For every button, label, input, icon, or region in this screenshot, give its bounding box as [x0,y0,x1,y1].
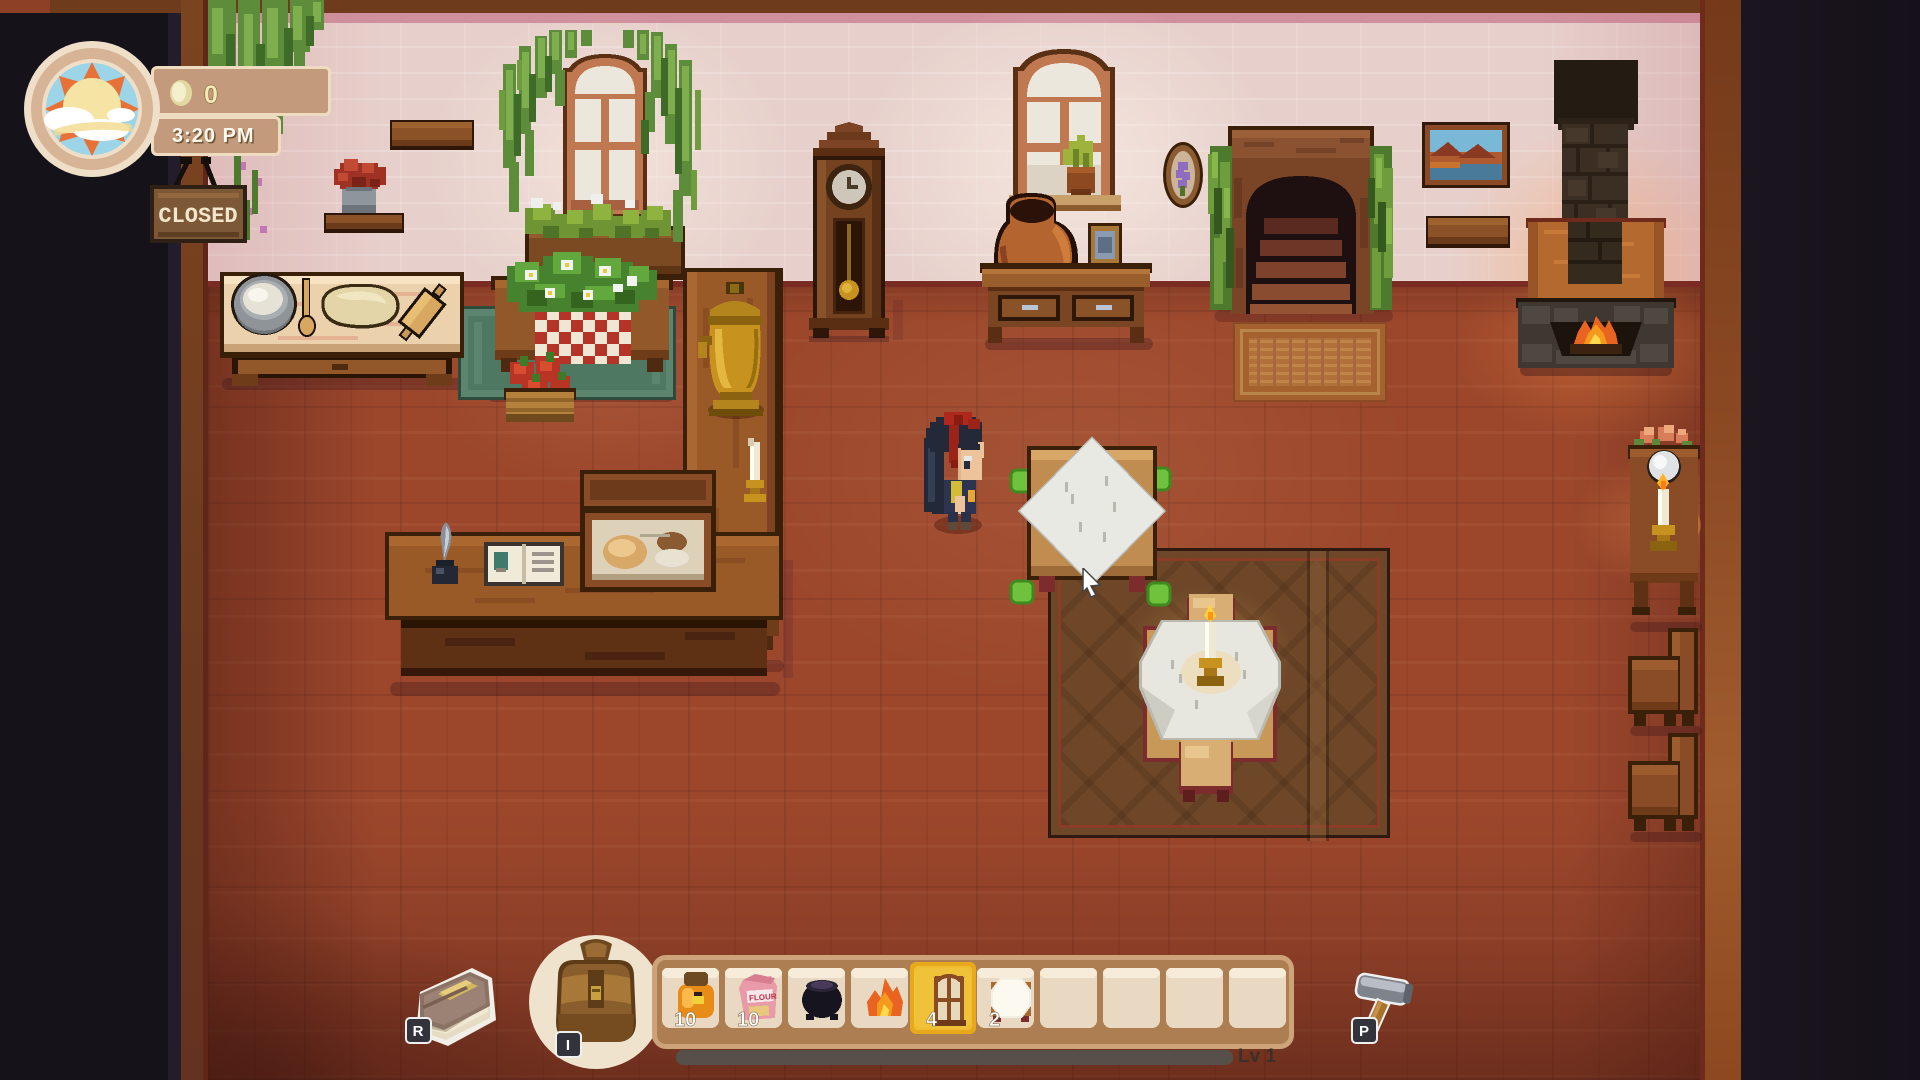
svg-text:4: 4 [926,1009,938,1031]
svg-text:10: 10 [674,1009,696,1031]
svg-text:10: 10 [737,1009,759,1031]
svg-text:0: 0 [204,81,218,109]
svg-text:P: P [1359,1023,1369,1040]
svg-text:2: 2 [989,1009,1000,1031]
svg-text:CLOSED: CLOSED [158,204,237,229]
svg-text:I: I [566,1037,570,1054]
svg-text:R: R [413,1023,424,1040]
